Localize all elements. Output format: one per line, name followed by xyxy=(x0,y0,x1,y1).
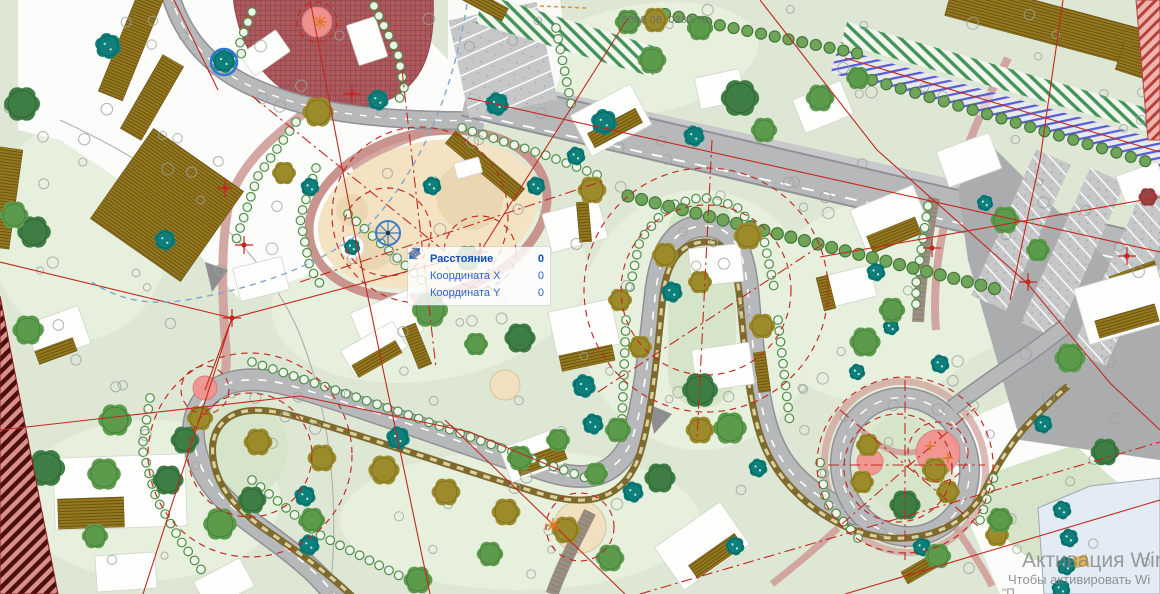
shrub xyxy=(924,202,933,211)
shrub xyxy=(172,529,181,538)
shrub xyxy=(510,141,519,150)
shrub xyxy=(248,8,257,17)
shrub xyxy=(765,260,774,269)
street-tree xyxy=(1025,121,1036,132)
shrub xyxy=(166,519,175,528)
street-tree xyxy=(1140,156,1151,167)
shrub xyxy=(783,392,792,401)
shrub xyxy=(552,155,561,164)
shrub xyxy=(139,437,148,446)
shrub xyxy=(266,154,275,163)
shrub xyxy=(139,448,148,457)
shrub xyxy=(144,405,153,414)
shrub xyxy=(780,370,789,379)
shrub xyxy=(976,516,985,525)
street-tree xyxy=(953,100,964,111)
tooltip-value: 0 xyxy=(528,270,544,282)
street-tree xyxy=(1125,151,1136,162)
shrub xyxy=(279,368,288,377)
shrub xyxy=(331,386,340,395)
street-tree xyxy=(636,193,648,205)
shrub xyxy=(312,164,321,173)
street-tree xyxy=(975,279,987,291)
cursor-coordinates: 5068.08, 0237.70 xyxy=(622,14,709,26)
street-tree xyxy=(703,211,715,223)
shrub xyxy=(244,18,253,27)
shrub xyxy=(355,551,364,560)
tooltip-row-distance: Расстояние 0 xyxy=(413,250,544,267)
street-tree xyxy=(756,28,767,39)
shrub xyxy=(692,194,701,203)
shrub xyxy=(520,144,529,153)
shrub xyxy=(142,415,151,424)
shrub xyxy=(289,372,298,381)
shrub xyxy=(384,31,393,40)
shrub xyxy=(296,216,305,225)
shrub xyxy=(582,167,591,176)
shrub xyxy=(239,213,248,222)
shrub xyxy=(733,204,742,213)
shrub xyxy=(248,358,257,367)
shrub xyxy=(621,327,630,336)
shrub xyxy=(912,278,921,287)
shrub xyxy=(254,172,263,181)
street-tree xyxy=(934,269,946,281)
shrub xyxy=(315,278,324,287)
shrub xyxy=(763,249,772,258)
shrub xyxy=(298,227,307,236)
shrub xyxy=(265,490,274,499)
shrub xyxy=(570,469,579,478)
shrub xyxy=(400,84,409,93)
shrub xyxy=(240,28,249,37)
shrub xyxy=(394,51,403,60)
street-tree xyxy=(742,25,753,36)
shrub xyxy=(302,195,311,204)
street-tree xyxy=(798,235,810,247)
street-tree xyxy=(838,45,849,56)
shrub xyxy=(300,375,309,384)
street-tree xyxy=(852,48,863,59)
shrub xyxy=(394,407,403,416)
street-tree xyxy=(1010,117,1021,128)
shrub xyxy=(365,556,374,565)
shrub xyxy=(633,250,642,259)
measurement-tooltip: Расстояние 0 Координата X 0 Координата Y… xyxy=(408,247,550,305)
shrub xyxy=(554,34,563,43)
street-tree xyxy=(910,87,921,98)
shrub xyxy=(310,379,319,388)
shrub xyxy=(618,404,627,413)
cad-viewport[interactable]: 5068.08, 0237.70 Расстояние 0 Координата… xyxy=(0,0,1160,594)
shrub xyxy=(305,259,314,268)
shrub xyxy=(774,316,783,325)
shrub xyxy=(273,497,282,506)
shrub xyxy=(628,272,637,281)
windows-activation-watermark-line3: "П xyxy=(1002,586,1015,594)
orange-marker xyxy=(546,518,560,532)
street-tree xyxy=(982,109,993,120)
street-tree xyxy=(649,197,661,209)
tooltip-row-coordinate-y: Координата Y 0 xyxy=(413,284,544,301)
shrub xyxy=(565,88,574,97)
shrub xyxy=(269,365,278,374)
shrub xyxy=(558,56,567,65)
shrub xyxy=(243,203,252,212)
street-tree xyxy=(948,272,960,284)
shrub xyxy=(769,281,778,290)
tooltip-value: 0 xyxy=(528,287,544,299)
street-tree xyxy=(1068,134,1079,145)
street-tree xyxy=(810,39,821,50)
shrub xyxy=(362,396,371,405)
shrub xyxy=(197,565,206,574)
shrub xyxy=(375,12,384,21)
street-tree xyxy=(728,23,739,34)
street-tree xyxy=(785,231,797,243)
shrub xyxy=(556,45,565,54)
compass-icon xyxy=(376,221,400,245)
tooltip-value: 0 xyxy=(528,253,544,265)
street-tree xyxy=(690,207,702,219)
shrub xyxy=(260,163,269,172)
shrub xyxy=(236,224,245,233)
shrub xyxy=(779,359,788,368)
street-tree xyxy=(1111,147,1122,158)
shrub xyxy=(552,24,561,33)
tooltip-row-coordinate-x: Координата X 0 xyxy=(413,267,544,284)
building xyxy=(95,552,157,592)
shrub xyxy=(760,238,769,247)
orange-marker xyxy=(313,15,327,29)
street-tree xyxy=(826,241,838,253)
shrub xyxy=(620,360,629,369)
shrub xyxy=(248,476,257,485)
shrub xyxy=(394,571,403,580)
street-tree xyxy=(717,214,729,226)
shrub xyxy=(620,349,629,358)
shrub xyxy=(785,414,794,423)
shrub xyxy=(458,124,467,133)
shrub xyxy=(396,62,405,71)
street-tree xyxy=(1097,143,1108,154)
street-tree xyxy=(714,20,725,31)
shrub xyxy=(258,361,267,370)
shrub xyxy=(292,118,301,127)
shrub xyxy=(373,400,382,409)
shrub xyxy=(236,38,245,47)
shrub xyxy=(647,222,656,231)
tooltip-label: Координата X xyxy=(430,270,528,282)
shrub xyxy=(190,556,199,565)
street-tree xyxy=(797,37,808,48)
shrub xyxy=(285,127,294,136)
street-tree xyxy=(824,42,835,53)
street-tree xyxy=(866,252,878,264)
tooltip-label: Координата Y xyxy=(430,287,528,299)
shrub xyxy=(776,338,785,347)
shrub xyxy=(375,561,384,570)
shrub xyxy=(395,94,404,103)
site-plan-canvas[interactable] xyxy=(0,0,1160,594)
shrub xyxy=(247,192,256,201)
shrub xyxy=(146,394,155,403)
street-tree xyxy=(924,92,935,103)
shrub xyxy=(500,137,509,146)
street-tree xyxy=(839,245,851,257)
shrub xyxy=(619,393,628,402)
street-tree xyxy=(895,83,906,94)
shrub xyxy=(142,458,151,467)
shrub xyxy=(326,536,335,545)
shrub xyxy=(232,234,241,243)
shrub xyxy=(784,403,793,412)
shrub xyxy=(559,466,568,475)
street-tree xyxy=(996,113,1007,124)
shrub xyxy=(370,2,379,11)
shrub xyxy=(389,41,398,50)
shrub xyxy=(279,136,288,145)
street-tree xyxy=(1053,130,1064,141)
street-tree xyxy=(893,259,905,271)
shrub xyxy=(489,134,498,143)
street-tree xyxy=(881,79,892,90)
shrub xyxy=(250,182,259,191)
shrub xyxy=(989,474,998,483)
street-tree xyxy=(783,34,794,45)
shrub xyxy=(273,145,282,154)
street-tree xyxy=(988,283,1000,295)
tooltip-label: Расстояние xyxy=(430,253,528,265)
shrub xyxy=(630,261,639,270)
shrub xyxy=(303,249,312,258)
shrub xyxy=(912,300,921,309)
shrub xyxy=(562,78,571,87)
shrub xyxy=(301,238,310,247)
street-tree xyxy=(921,265,933,277)
street-tree xyxy=(769,31,780,42)
shrub xyxy=(385,566,394,575)
shrub xyxy=(635,240,644,249)
shrub xyxy=(336,541,345,550)
shrub xyxy=(352,393,361,402)
shrub xyxy=(468,127,477,136)
windows-activation-watermark-subtitle: Чтобы активировать Wi xyxy=(1008,572,1150,587)
shrub xyxy=(345,546,354,555)
shrub xyxy=(767,270,776,279)
shrub xyxy=(922,213,931,222)
shrub xyxy=(237,49,246,58)
shrub xyxy=(917,245,926,254)
street-tree xyxy=(961,276,973,288)
shrub xyxy=(621,338,630,347)
street-tree xyxy=(938,96,949,107)
shrub xyxy=(290,511,299,520)
shrub xyxy=(654,213,663,222)
shrub xyxy=(177,538,186,547)
shrub xyxy=(298,206,307,215)
play-pad xyxy=(193,376,217,400)
shrub xyxy=(560,67,569,76)
shrub xyxy=(380,21,389,30)
street-tree xyxy=(907,262,919,274)
shrub xyxy=(531,148,540,157)
street-tree xyxy=(1082,139,1093,150)
shrub xyxy=(184,547,193,556)
street-tree xyxy=(663,200,675,212)
windows-activation-watermark-title: Активация Windows xyxy=(1022,549,1160,573)
shrub xyxy=(920,223,929,232)
shrub xyxy=(777,348,786,357)
street-tree xyxy=(967,104,978,115)
